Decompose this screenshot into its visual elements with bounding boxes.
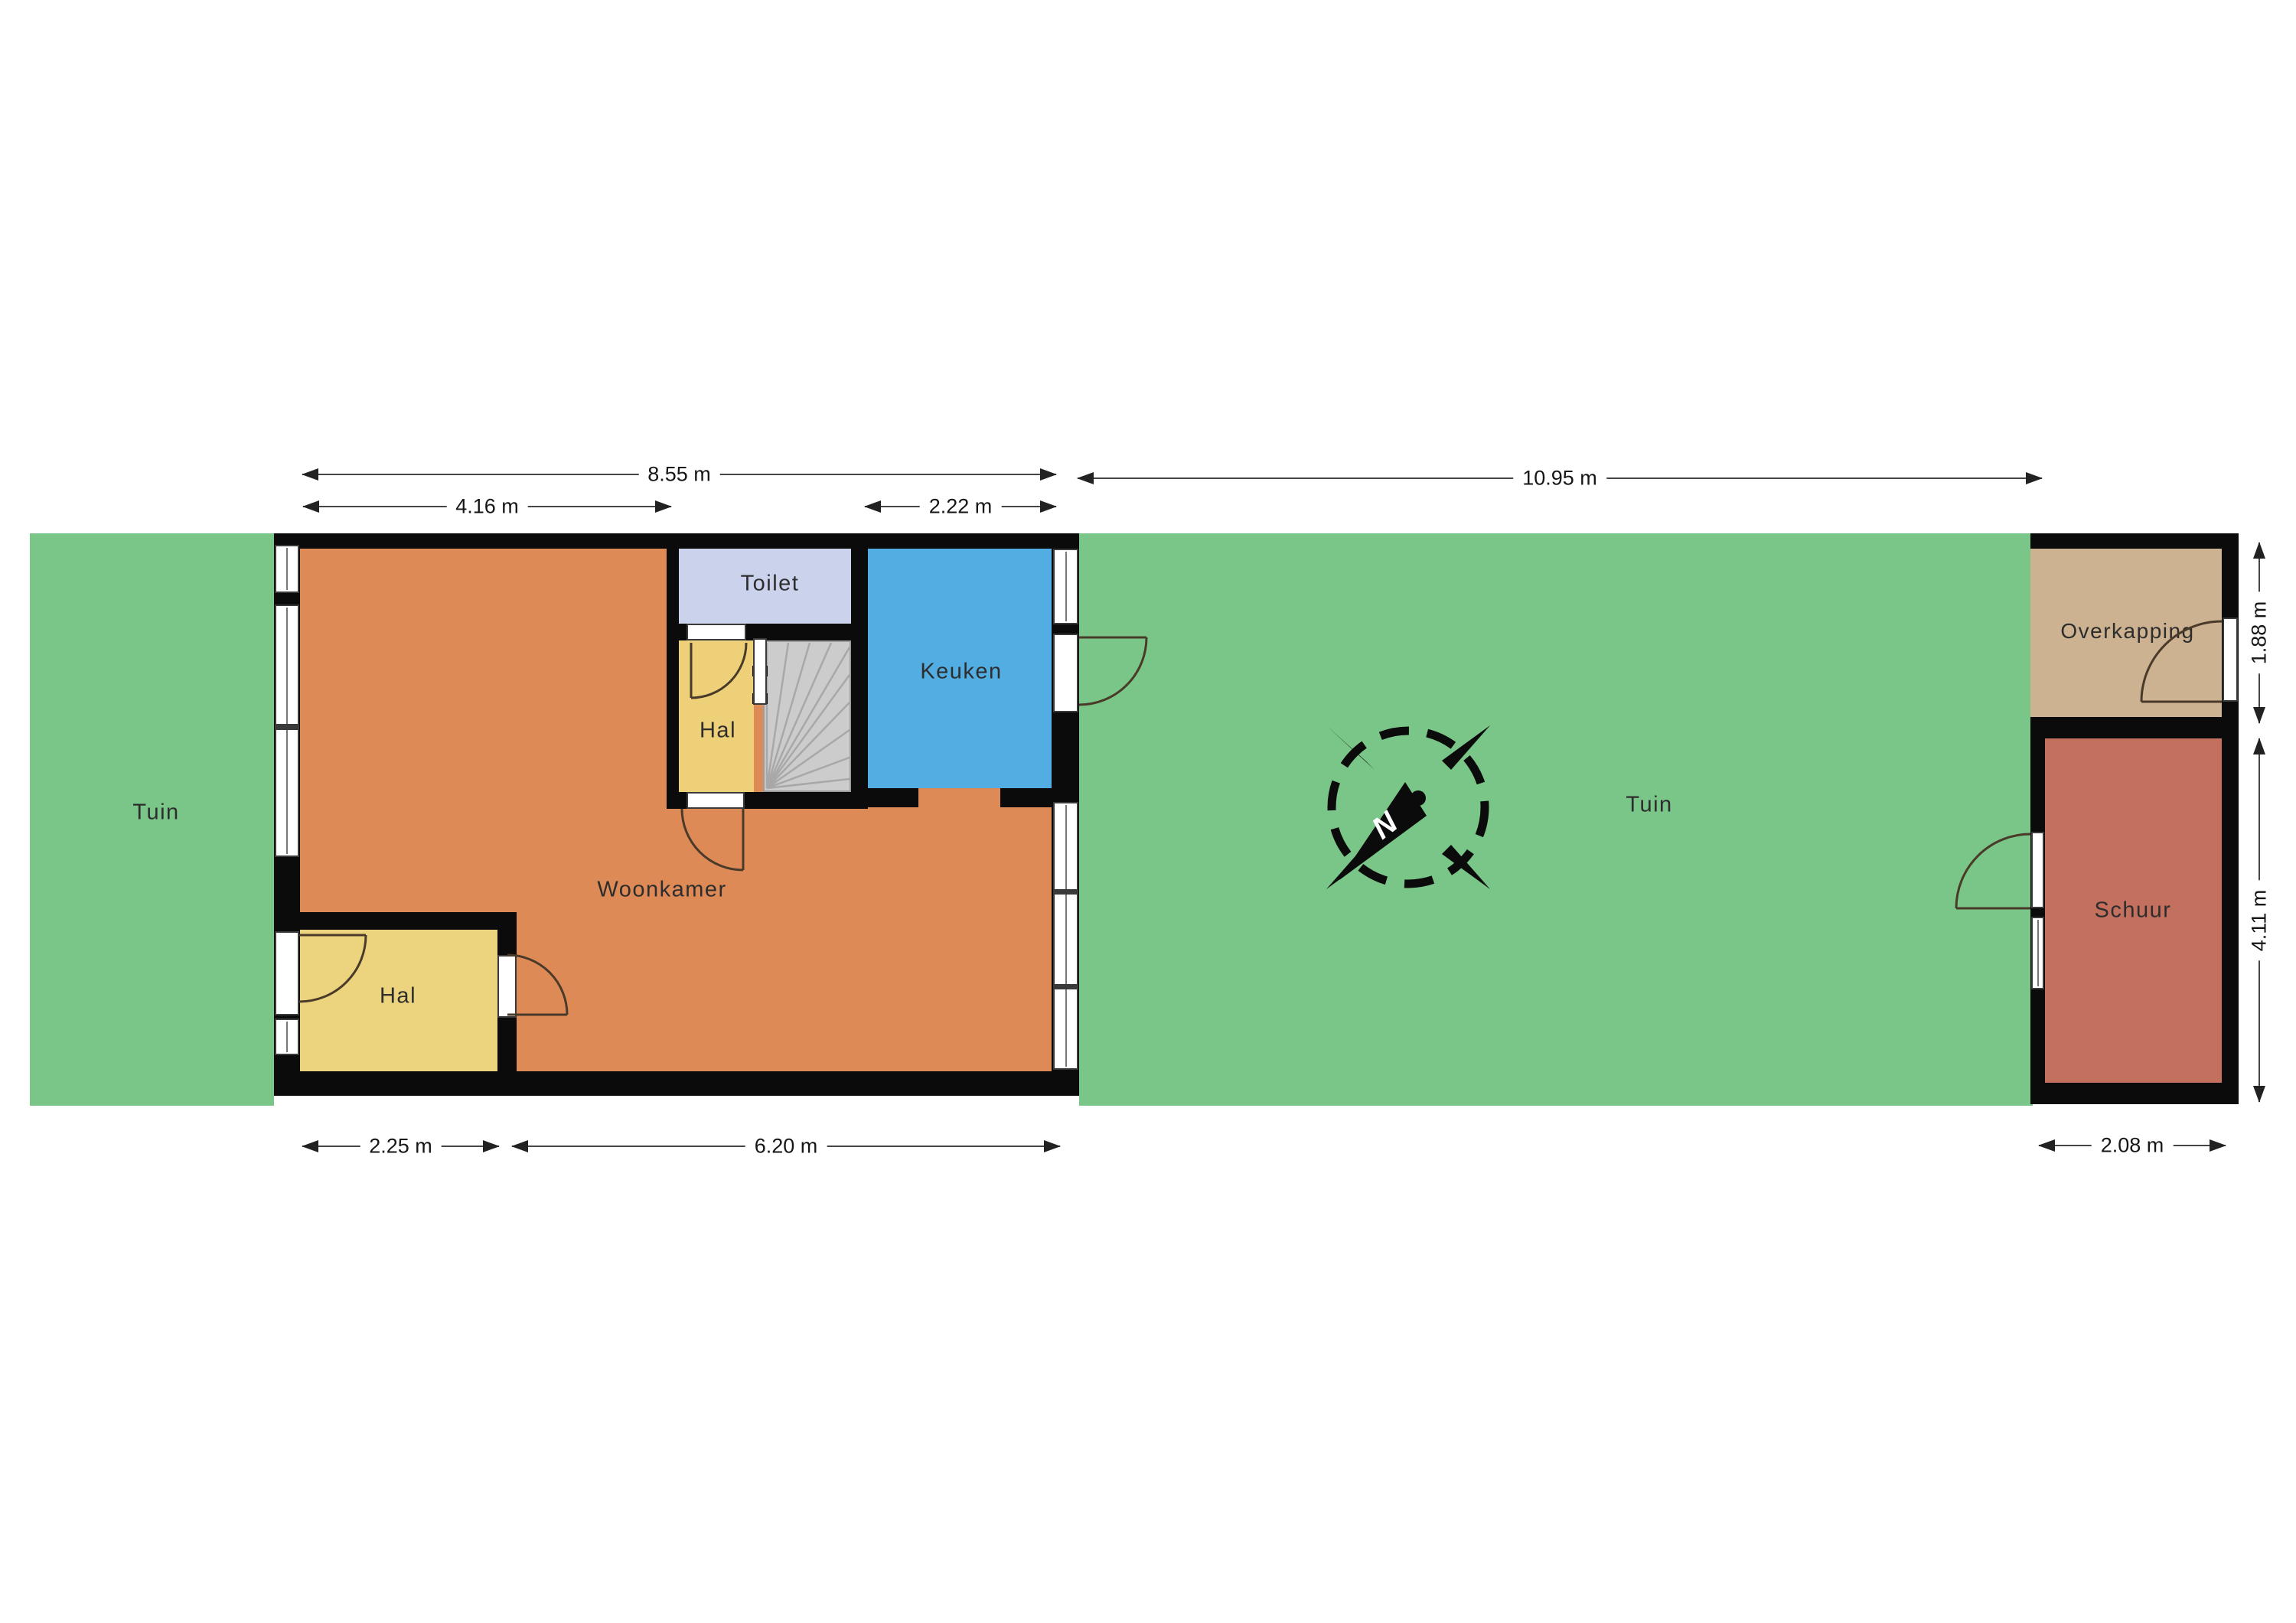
wall-bottom (274, 1071, 1079, 1096)
arrowhead-right-icon (2210, 1139, 2226, 1152)
dim-garden-width: 10.95 m (1078, 477, 2042, 479)
wall-hall-bottom-a (667, 792, 687, 809)
carport-label: Overkapping (2060, 619, 2194, 644)
dim-label: 2.25 m (360, 1135, 442, 1159)
front-door (275, 931, 299, 1015)
dim-label: 4.11 m (2248, 880, 2272, 960)
window-kitchen-right (1053, 549, 1078, 624)
arrowhead-left-icon (2038, 1139, 2055, 1152)
window-hall-lower-left (275, 1018, 299, 1055)
hall-upper-label: Hal (700, 719, 736, 744)
arrowhead-right-icon (483, 1140, 500, 1152)
wall-hall-bottom-b (745, 792, 868, 809)
dim-label: 2.08 m (2092, 1134, 2174, 1158)
arrowhead-left-icon (302, 1140, 318, 1152)
arrowhead-down-icon (2253, 707, 2265, 724)
hall-lower-label: Hal (380, 984, 416, 1009)
window-mullion (1053, 889, 1078, 895)
dim-living-width: 6.20 m (512, 1146, 1060, 1147)
wall-toilet-bottom-b (746, 624, 851, 640)
arrowhead-left-icon (864, 500, 881, 513)
window-mullion (275, 724, 299, 730)
wall-hall-lower-right-b (497, 1018, 517, 1071)
arrowhead-left-icon (302, 468, 318, 481)
hall-living-door-opening (687, 792, 745, 809)
arrowhead-up-icon (2253, 738, 2265, 754)
shed-wall-bottom (2030, 1083, 2239, 1104)
hall-lower-living-door (497, 955, 517, 1018)
living-room-label: Woonkamer (597, 878, 726, 903)
arrowhead-right-icon (1044, 1140, 1061, 1152)
shed-wall-right (2222, 727, 2239, 1104)
dim-kitchen-width: 2.22 m (865, 506, 1056, 507)
dim-hall-width: 2.25 m (302, 1146, 499, 1147)
dim-shed-depth: 4.11 m (2258, 738, 2260, 1102)
carport-wall-top (2030, 533, 2239, 549)
dim-label: 6.20 m (745, 1135, 827, 1159)
arrowhead-down-icon (2253, 1086, 2265, 1103)
dim-label: 1.88 m (2248, 592, 2272, 674)
window-mullion (1053, 984, 1078, 989)
window-living-left-small (275, 545, 299, 593)
arrowhead-left-icon (511, 1140, 528, 1152)
wall-living-hall (667, 533, 679, 809)
wall-stairs-kitchen (851, 533, 868, 806)
stairs-floor (763, 640, 851, 792)
wall-hall-lower-right-a (497, 912, 517, 955)
toilet-door-opening (687, 624, 746, 640)
arrowhead-right-icon (1040, 500, 1057, 513)
kitchen-label: Keuken (920, 660, 1002, 685)
arrowhead-left-icon (302, 500, 319, 513)
garden-right (1079, 533, 2033, 1106)
floor-plan: Woonkamer Keuken Toilet Hal Hal Tuin Tui… (0, 0, 2296, 1623)
arrowhead-right-icon (1040, 468, 1057, 481)
shed-label: Schuur (2095, 898, 2172, 924)
garden-left-label: Tuin (132, 800, 179, 826)
wall-hall-lower-top (274, 912, 517, 930)
wall-kitchen-bottom-b (1000, 788, 1052, 807)
hall-upper-floor (679, 640, 754, 792)
garden-right-label: Tuin (1626, 793, 1672, 818)
arrowhead-up-icon (2253, 542, 2265, 559)
dim-house-width: 8.55 m (302, 474, 1056, 475)
arrowhead-right-icon (2026, 472, 2043, 484)
wall-toilet-bottom-a (679, 624, 687, 640)
shed-door (2031, 832, 2044, 908)
dim-shed-width: 2.08 m (2039, 1145, 2226, 1146)
dim-label: 4.16 m (446, 495, 528, 519)
wall-kitchen-bottom-a (868, 788, 918, 807)
carport-door (2223, 618, 2238, 702)
window-living-left-long (275, 605, 299, 857)
kitchen-garden-door (1053, 634, 1078, 712)
dim-label: 10.95 m (1513, 467, 1606, 490)
dim-carport-depth: 1.88 m (2258, 543, 2260, 723)
arrowhead-left-icon (1077, 472, 1094, 484)
window-living-right-long (1053, 802, 1078, 1070)
dim-left-section: 4.16 m (303, 506, 671, 507)
dim-label: 8.55 m (638, 463, 720, 487)
shed-window (2031, 917, 2044, 989)
dim-label: 2.22 m (920, 495, 1002, 519)
arrowhead-right-icon (655, 500, 672, 513)
carport-shed-wall (2030, 717, 2239, 738)
toilet-label: Toilet (741, 572, 800, 597)
